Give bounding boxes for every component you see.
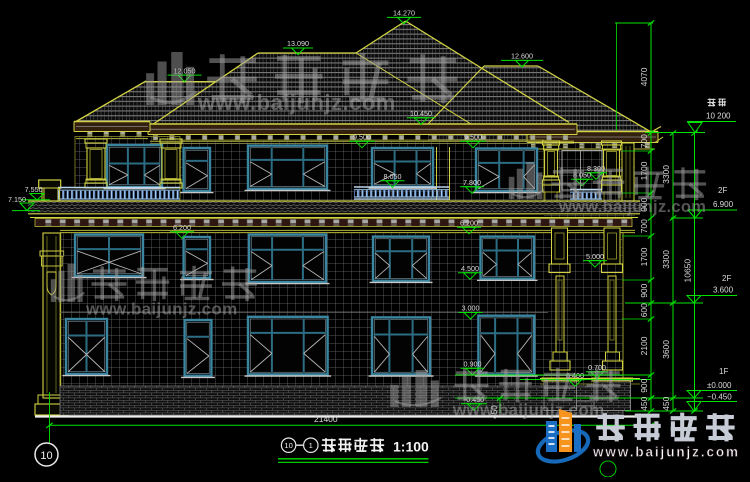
svg-text:7.550: 7.550: [25, 185, 43, 194]
svg-text:7.150: 7.150: [8, 195, 26, 204]
svg-text:1: 1: [309, 441, 313, 450]
svg-text:21400: 21400: [314, 414, 338, 424]
svg-text:1F: 1F: [719, 367, 728, 376]
svg-text:10650: 10650: [683, 259, 693, 283]
svg-text:2F: 2F: [722, 274, 731, 283]
svg-text:2100: 2100: [639, 336, 649, 355]
svg-text:www.baijunjz.com: www.baijunjz.com: [197, 90, 396, 115]
svg-text:www.baijunjz.com: www.baijunjz.com: [85, 300, 238, 319]
svg-text:700: 700: [639, 134, 649, 148]
svg-text:10: 10: [40, 450, 52, 462]
svg-text:3.000: 3.000: [462, 304, 480, 313]
svg-text:10.450: 10.450: [410, 109, 432, 118]
svg-text:13.090: 13.090: [287, 39, 309, 48]
svg-text:450: 450: [639, 396, 649, 410]
svg-text:700: 700: [639, 219, 649, 233]
svg-text:www.baijunjz.com: www.baijunjz.com: [558, 198, 706, 216]
svg-text:5.000: 5.000: [586, 252, 604, 261]
svg-text:12.600: 12.600: [511, 52, 533, 61]
svg-text:2F: 2F: [718, 186, 727, 195]
svg-text:1700: 1700: [639, 247, 649, 266]
svg-text:4.500: 4.500: [461, 264, 479, 273]
svg-text:9.500: 9.500: [353, 133, 371, 142]
svg-text:±0.000: ±0.000: [707, 381, 732, 390]
svg-text:10: 10: [284, 441, 292, 450]
svg-text:1:100: 1:100: [393, 439, 429, 455]
svg-text:www.baijunjz.com: www.baijunjz.com: [592, 445, 740, 460]
svg-text:14.270: 14.270: [393, 9, 415, 18]
svg-text:8.050: 8.050: [384, 172, 402, 181]
svg-text:www.baijunjz.com: www.baijunjz.com: [452, 401, 605, 420]
svg-text:900: 900: [639, 378, 649, 392]
svg-text:3.600: 3.600: [713, 286, 734, 295]
svg-text:600: 600: [639, 303, 649, 317]
svg-text:6.200: 6.200: [173, 223, 191, 232]
svg-text:6.900: 6.900: [713, 200, 734, 209]
svg-text:3600: 3600: [661, 340, 671, 359]
svg-text:450: 450: [661, 396, 671, 410]
svg-text:10 200: 10 200: [706, 112, 731, 121]
svg-text:4070: 4070: [639, 67, 649, 86]
svg-text:3300: 3300: [661, 250, 671, 269]
svg-text:6.200: 6.200: [460, 219, 478, 228]
svg-text:900: 900: [639, 283, 649, 297]
svg-text:0.900: 0.900: [464, 360, 482, 369]
svg-text:9.500: 9.500: [464, 133, 482, 142]
svg-text:7.800: 7.800: [463, 178, 481, 187]
svg-text:−0.450: −0.450: [707, 393, 732, 402]
